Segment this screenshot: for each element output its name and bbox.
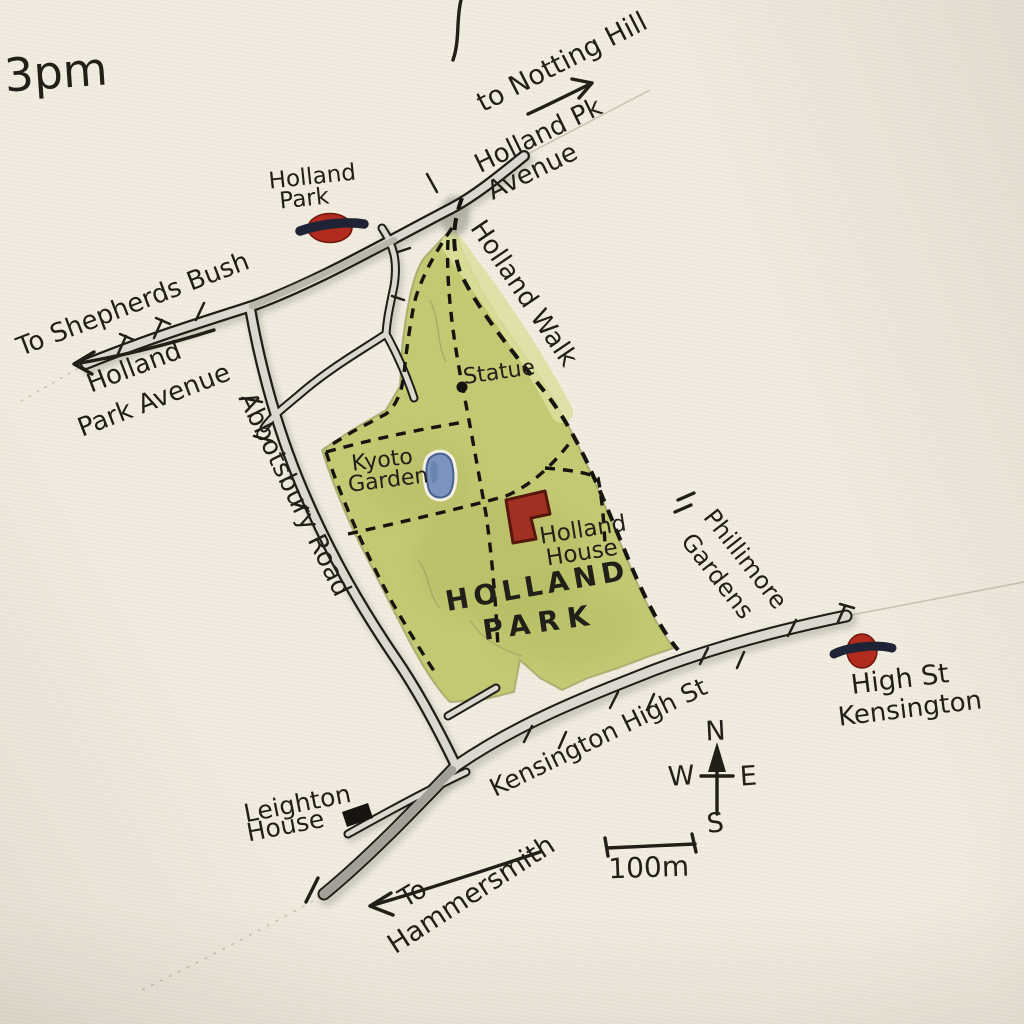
pond-shading [430,461,438,483]
compass-rose: N E S W [667,716,758,840]
pencil-line-east [846,582,1024,616]
holland-park-roundel [300,214,364,243]
road-dark-wash-avenue [252,240,394,306]
compass-north-label: N [705,716,727,748]
holland-park-map: N E S W 100m 3pm to Notting Hill Holland… [0,0,1024,1024]
road-end-mark [306,878,318,902]
time-note: 3pm [2,42,109,103]
compass-south-label: S [705,807,725,839]
direction-notting-hill: to Notting Hill [472,6,652,118]
compass-east-label: E [739,760,758,792]
watercolor-paper: N E S W 100m 3pm to Notting Hill Holland… [0,0,1024,1024]
pencil-line-southwest [142,896,322,990]
scale-bar: 100m [605,834,696,885]
high-st-kensington-roundel [834,634,892,668]
scale-label: 100m [608,850,690,886]
tick [427,174,437,192]
kyoto-garden-pond [426,454,453,498]
station-label-holland-park-line2: Park [278,183,331,214]
cropped-pen-stroke [453,0,461,60]
compass-west-label: W [667,760,696,793]
equals-mark [675,493,694,512]
pencil-line-west [16,364,86,404]
